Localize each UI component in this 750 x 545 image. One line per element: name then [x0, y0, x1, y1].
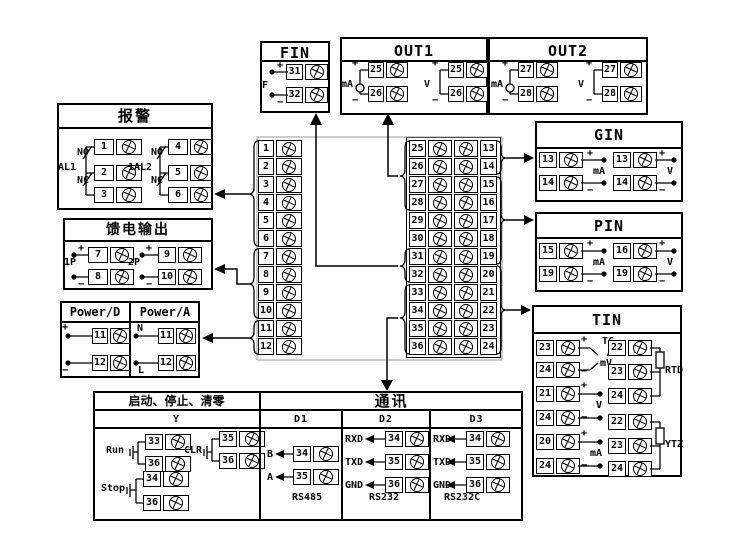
screw-icon [178, 269, 202, 285]
screw-icon [405, 477, 429, 493]
arrow-to-pin-icon [524, 215, 534, 225]
screw-icon [165, 456, 191, 472]
screw-icon [454, 284, 478, 301]
strip-right-row: 3422 [409, 302, 497, 319]
screw-icon [454, 212, 478, 229]
terminal-tin-rtd-24: 24 [608, 388, 652, 404]
screw-icon [110, 269, 134, 285]
terminal-tin-rtd-23: 23 [608, 364, 652, 380]
screw-icon [428, 140, 452, 157]
feed-1p-label: 1P [64, 258, 76, 268]
bracket-terminals-7-10 [249, 249, 258, 318]
terminal-fin-32: 32 [286, 87, 328, 103]
fin-minus-label: − [277, 98, 283, 108]
screw-icon [454, 194, 478, 211]
screw-icon [628, 364, 652, 380]
out2-v-label: V [578, 80, 584, 90]
power-d-plus: + [62, 323, 68, 333]
control-run-label: Run [106, 446, 124, 456]
screw-icon [486, 454, 510, 470]
terminal-run-36: 36 [145, 456, 191, 472]
terminal-gin-13a: 13 [539, 152, 583, 168]
arrow-to-tin-icon [521, 305, 531, 315]
screw-icon [556, 434, 580, 450]
control-title: 启动、停止、清零 [93, 395, 260, 408]
terminal-alarm-3: 3 [94, 187, 142, 203]
strip-left-row: 1 [258, 140, 302, 157]
strip-left-row: 12 [258, 338, 302, 355]
strip-left-row: 6 [258, 230, 302, 247]
screw-icon [110, 328, 130, 344]
screw-icon [628, 438, 652, 454]
pin-ma-label: mA [593, 258, 605, 268]
screw-icon [454, 320, 478, 337]
strip-left-row: 5 [258, 212, 302, 229]
screw-icon [559, 152, 583, 168]
out2-v-minus: − [586, 96, 592, 106]
screw-icon [428, 320, 452, 337]
screw-icon [190, 139, 212, 155]
feed-2p-label: 2P [128, 258, 140, 268]
terminal-out2-27a: 27 [518, 62, 558, 78]
terminal-out1-25b: 25 [448, 62, 488, 78]
alarm-title: 报警 [57, 108, 213, 125]
screw-icon [116, 139, 142, 155]
screw-icon [313, 469, 339, 485]
screw-icon [176, 355, 196, 371]
screw-icon [633, 175, 657, 191]
screw-icon [454, 248, 478, 265]
feed-2p-minus: − [146, 280, 152, 290]
screw-icon [239, 431, 265, 447]
feed-title: 馈电输出 [63, 223, 213, 238]
feed-2p-plus: + [146, 244, 152, 254]
comm-d1-b-label: B [267, 450, 273, 460]
strip-left-row: 7 [258, 248, 302, 265]
terminal-d3-35: 35 [466, 454, 510, 470]
strip-right-row: 3018 [409, 230, 497, 247]
screw-icon [176, 328, 196, 344]
terminal-fin-31: 31 [286, 64, 328, 80]
alarm-al2-label: 1AL2 [128, 163, 152, 173]
arrow-to-gin-icon [524, 153, 534, 163]
strip-right-row: 3119 [409, 248, 497, 265]
terminal-alarm-4: 4 [168, 139, 212, 155]
screw-icon [276, 212, 302, 229]
bracket-terminals-11-12 [249, 321, 258, 354]
terminal-pin-19a: 19 [539, 266, 583, 282]
out1-v-label: V [424, 80, 430, 90]
tin-tc-plus: + [581, 335, 587, 345]
comm-col-d3: D3 [430, 414, 523, 425]
control-col-y: Y [93, 414, 260, 425]
terminal-tin-23tc: 23 [536, 340, 580, 356]
terminal-d3-36: 36 [466, 477, 510, 493]
terminal-tin-24tc: 24 [536, 362, 580, 378]
screw-icon [454, 176, 478, 193]
screw-icon [276, 338, 302, 355]
terminal-out2-27b: 27 [602, 62, 642, 78]
screw-icon [454, 158, 478, 175]
screw-icon [276, 158, 302, 175]
comm-d3-txd-label: TXD [433, 458, 451, 468]
screw-icon [276, 248, 302, 265]
arrow-to-comm-icon [381, 380, 393, 391]
terminal-powerd-11: 11 [92, 328, 130, 344]
pin-ma-minus: − [587, 277, 593, 287]
screw-icon [276, 140, 302, 157]
screw-icon [276, 266, 302, 283]
screw-icon [428, 212, 452, 229]
terminal-d2-36: 36 [385, 477, 429, 493]
strip-left-row: 8 [258, 266, 302, 283]
screw-icon [305, 87, 328, 103]
screw-icon [556, 362, 580, 378]
feed-1p-plus: + [78, 244, 84, 254]
out1-v-minus: − [432, 96, 438, 106]
gin-ma-minus: − [587, 186, 593, 196]
screw-icon [276, 302, 302, 319]
gin-v-label: V [667, 167, 673, 177]
tin-ma-label: mA [590, 449, 602, 459]
screw-icon [454, 266, 478, 283]
terminal-out1-26a: 26 [368, 86, 408, 102]
terminal-clr-35: 35 [219, 431, 265, 447]
screw-icon [628, 340, 652, 356]
terminal-pin-19b: 19 [613, 266, 657, 282]
terminal-powera-11: 11 [158, 328, 196, 344]
screw-icon [178, 247, 202, 263]
terminal-d3-34: 34 [466, 431, 510, 447]
terminal-out2-28b: 28 [602, 86, 642, 102]
screw-icon [454, 230, 478, 247]
screw-icon [428, 230, 452, 247]
comm-d3-rxd-label: RXD [433, 435, 451, 445]
terminal-powera-12: 12 [158, 355, 196, 371]
screw-icon [305, 64, 328, 80]
terminal-gin-14a: 14 [539, 175, 583, 191]
terminal-tin-rtd-22: 22 [608, 340, 652, 356]
screw-icon [556, 340, 580, 356]
screw-icon [559, 266, 583, 282]
terminal-d2-34: 34 [385, 431, 429, 447]
screw-icon [428, 284, 452, 301]
strip-right-row: 2614 [409, 158, 497, 175]
feed-1p-minus: − [78, 280, 84, 290]
tin-rtd-label: RTD [665, 366, 683, 376]
strip-right-row: 2816 [409, 194, 497, 211]
screw-icon [620, 86, 642, 102]
screw-icon [556, 410, 580, 426]
terminal-feed-8: 8 [88, 269, 134, 285]
strip-right-row: 3523 [409, 320, 497, 337]
gin-v-plus: + [659, 149, 665, 159]
terminal-gin-13b: 13 [613, 152, 657, 168]
tin-ma-plus: + [581, 429, 587, 439]
terminal-tin-ytz-22: 22 [608, 414, 652, 430]
terminal-clr-36: 36 [219, 453, 265, 469]
terminal-d1-35: 35 [293, 469, 339, 485]
screw-icon [486, 431, 510, 447]
strip-left-row: 11 [258, 320, 302, 337]
terminal-out2-28a: 28 [518, 86, 558, 102]
terminal-out1-26b: 26 [448, 86, 488, 102]
alarm-al2-no: NO [151, 148, 163, 158]
strip-right-row: 2917 [409, 212, 497, 229]
terminal-feed-9: 9 [158, 247, 202, 263]
screw-icon [110, 355, 130, 371]
power-d-minus: − [62, 366, 68, 376]
screw-icon [486, 477, 510, 493]
comm-d1-type: RS485 [292, 493, 322, 503]
control-clr-label: CLR [184, 446, 202, 456]
fin-title: FIN [260, 45, 330, 62]
terminal-out1-25a: 25 [368, 62, 408, 78]
comm-col-d2: D2 [342, 414, 430, 425]
comm-d3-type: RS232C [444, 493, 480, 503]
terminal-feed-10: 10 [158, 269, 202, 285]
terminal-powerd-12: 12 [92, 355, 130, 371]
screw-icon [454, 140, 478, 157]
screw-icon [559, 243, 583, 259]
screw-icon [559, 175, 583, 191]
screw-icon [116, 187, 142, 203]
tin-tc-minus: − [581, 367, 587, 377]
tin-v-label: V [596, 401, 602, 411]
screw-icon [276, 320, 302, 337]
wiring-diagram: FIN OUT1 OUT2 报警 馈电输出 Power/D Power/A GI… [0, 0, 750, 545]
gin-ma-label: mA [593, 167, 605, 177]
pin-title: PIN [535, 218, 683, 235]
strip-right-row: 2715 [409, 176, 497, 193]
screw-icon [386, 62, 408, 78]
screw-icon [466, 62, 488, 78]
strip-right-row: 3321 [409, 284, 497, 301]
out2-ma-plus: + [502, 59, 508, 69]
out2-v-plus: + [586, 59, 592, 69]
strip-left-row: 10 [258, 302, 302, 319]
pin-v-minus: − [659, 277, 665, 287]
screw-icon [633, 243, 657, 259]
gin-v-minus: − [659, 186, 665, 196]
comm-d3-gnd-label: GND [433, 481, 451, 491]
screw-icon [536, 62, 558, 78]
screw-icon [556, 386, 580, 402]
screw-icon [386, 86, 408, 102]
comm-d2-rxd-label: RXD [345, 435, 363, 445]
alarm-al1-no: NO [77, 148, 89, 158]
screw-icon [405, 431, 429, 447]
out1-title: OUT1 [340, 43, 488, 60]
screw-icon [428, 248, 452, 265]
terminal-stop-34: 34 [143, 471, 189, 487]
comm-d2-type: RS232 [369, 493, 399, 503]
strip-left-row: 2 [258, 158, 302, 175]
bracket-terminals-1-6 [249, 141, 258, 246]
gin-title: GIN [535, 127, 683, 144]
tin-v-minus: − [581, 413, 587, 423]
power-a-n: N [137, 324, 143, 334]
out1-ma-plus: + [352, 59, 358, 69]
screw-icon [276, 194, 302, 211]
terminal-tin-24ma: 24 [536, 458, 580, 474]
screw-icon [428, 176, 452, 193]
screw-icon [628, 414, 652, 430]
comm-title: 通讯 [260, 393, 523, 410]
strip-left-row: 4 [258, 194, 302, 211]
terminal-alarm-5: 5 [168, 165, 212, 181]
screw-icon [163, 471, 189, 487]
arrow-to-power-icon [202, 333, 213, 343]
strip-right-row: 3624 [409, 338, 497, 355]
screw-icon [163, 495, 189, 511]
terminal-tin-ytz-23: 23 [608, 438, 652, 454]
terminal-alarm-1: 1 [94, 139, 142, 155]
strip-left-row: 9 [258, 284, 302, 301]
screw-icon [276, 284, 302, 301]
screw-icon [428, 302, 452, 319]
control-stop-label: Stop [101, 484, 125, 494]
out2-ma-label: mA [491, 80, 503, 90]
strip-left-row: 3 [258, 176, 302, 193]
screw-icon [276, 176, 302, 193]
pin-v-plus: + [659, 239, 665, 249]
out2-ma-minus: − [502, 96, 508, 106]
alarm-al2-nc: NC [151, 176, 163, 186]
terminal-d2-35: 35 [385, 454, 429, 470]
out1-v-plus: + [432, 59, 438, 69]
tin-title: TIN [532, 312, 682, 329]
gin-ma-plus: + [587, 149, 593, 159]
tin-ytz-label: YTZ [665, 440, 683, 450]
terminal-pin-16: 16 [613, 243, 657, 259]
screw-icon [190, 165, 212, 181]
screw-icon [536, 86, 558, 102]
terminal-pin-15: 15 [539, 243, 583, 259]
terminal-alarm-6: 6 [168, 187, 212, 203]
screw-icon [454, 338, 478, 355]
fin-plus-label: + [277, 61, 283, 71]
terminal-tin-24v: 24 [536, 410, 580, 426]
strip-right-row: 2513 [409, 140, 497, 157]
comm-d2-gnd-label: GND [345, 481, 363, 491]
out2-title: OUT2 [488, 43, 648, 60]
screw-icon [454, 302, 478, 319]
comm-d1-a-label: A [267, 473, 273, 483]
power-a-l: L [138, 366, 144, 376]
arrow-to-alarm-icon [214, 189, 225, 199]
terminal-stop-36: 36 [143, 495, 189, 511]
strip-right-row: 3220 [409, 266, 497, 283]
fin-f-label: F [262, 81, 268, 91]
power-d-title: Power/D [60, 306, 130, 319]
screw-icon [405, 454, 429, 470]
terminal-tin-20: 20 [536, 434, 580, 450]
screw-icon [633, 266, 657, 282]
alarm-al1-nc: NC [77, 176, 89, 186]
screw-icon [313, 446, 339, 462]
terminal-tin-ytz-24: 24 [608, 461, 652, 477]
terminal-d1-34: 34 [293, 446, 339, 462]
arrow-to-fin-icon [310, 113, 322, 125]
screw-icon [428, 194, 452, 211]
screw-icon [428, 338, 452, 355]
screw-icon [466, 86, 488, 102]
screw-icon [628, 388, 652, 404]
alarm-al1-label: AL1 [58, 163, 76, 173]
pin-v-label: V [667, 258, 673, 268]
screw-icon [428, 158, 452, 175]
comm-d2-txd-label: TXD [345, 458, 363, 468]
comm-col-d1: D1 [260, 414, 342, 425]
out1-ma-label: mA [341, 80, 353, 90]
terminal-gin-14b: 14 [613, 175, 657, 191]
tin-v-plus: + [581, 381, 587, 391]
tin-ma-minus: − [581, 461, 587, 471]
arrow-to-feed-icon [214, 264, 225, 274]
screw-icon [190, 187, 212, 203]
screw-icon [633, 152, 657, 168]
screw-icon [239, 453, 265, 469]
terminal-tin-21: 21 [536, 386, 580, 402]
screw-icon [620, 62, 642, 78]
screw-icon [628, 461, 652, 477]
out1-ma-minus: − [352, 96, 358, 106]
power-a-title: Power/A [130, 306, 200, 319]
screw-icon [276, 230, 302, 247]
screw-icon [428, 266, 452, 283]
screw-icon [556, 458, 580, 474]
pin-ma-plus: + [587, 239, 593, 249]
